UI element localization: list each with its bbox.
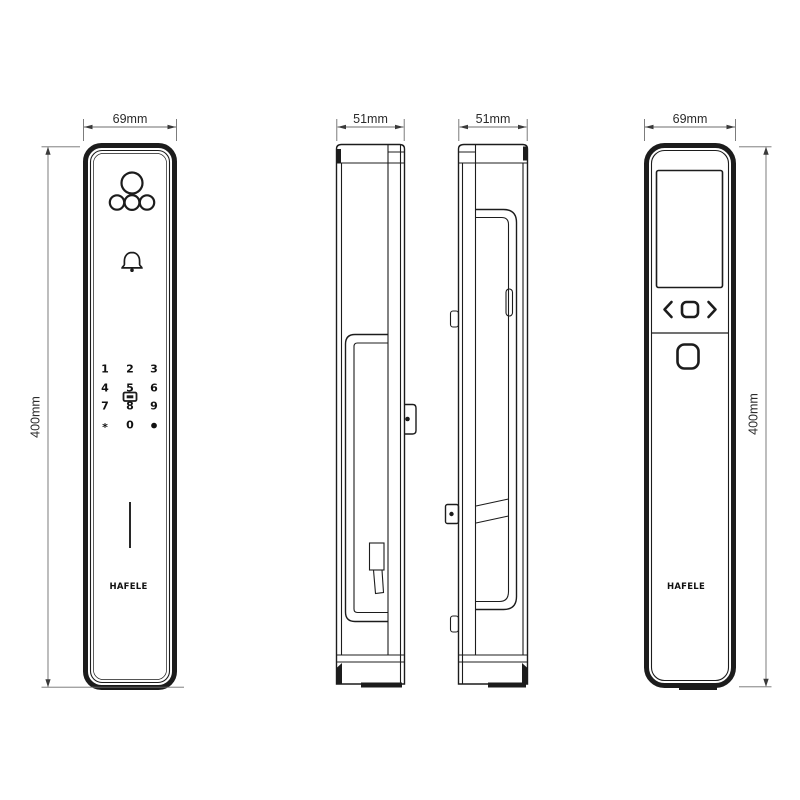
side-b-foot [488,683,526,688]
dim-label-side-b-width: 51mm [476,112,511,126]
keypad-key: 4 [101,382,109,395]
side-b-bottom-cap [459,655,528,662]
side-a-bottom-cap [337,655,405,662]
nav-right-icon [709,302,716,317]
side-a-body-outline [337,145,405,685]
keypad-key: 0 [126,419,134,432]
dim-label-front-width: 69mm [113,112,148,126]
keypad-key: 9 [150,400,158,413]
front-inner-line-2 [94,154,167,680]
key-cylinder-icon [370,543,385,594]
side-b-edge-shade-top [523,147,528,161]
nav-ok-icon [682,302,698,317]
brand-logo-front: HAFELE [109,582,147,592]
front-view: 1 2 3 4 5 6 7 8 9 * 0 ● HAFELE [86,146,175,688]
pull-handle-profile-b [476,210,517,610]
pull-handle-profile-a [346,335,389,622]
mount-clip-top [451,311,459,327]
dimension-front-height: 400mm [29,147,185,687]
keypad-key: * [102,421,108,434]
side-b-edge-shade-bottom [522,663,528,684]
strike-fitting-icon [446,505,459,524]
nav-left-icon [665,302,672,317]
keypad-key: 1 [101,363,109,376]
front-inner-line [91,151,170,683]
display-screen [657,171,723,288]
dim-label-front-height: 400mm [29,396,43,438]
side-a-foot [361,683,402,688]
dimension-back-width: 69mm [645,112,736,141]
side-b-top-cap [459,145,528,164]
technical-drawing-page: 1 2 3 4 5 6 7 8 9 * 0 ● HAFELE [0,0,800,800]
handle-slot-detail [506,289,513,316]
side-view-a [337,145,417,688]
side-a-edge-shade-bottom [337,663,343,684]
side-a-edge-shade-top [337,149,342,163]
dimension-side-a-width: 51mm [337,112,404,141]
keypad-key: ● [151,421,158,430]
dim-label-back-width: 69mm [673,112,708,126]
side-a-panel-lines [342,145,401,685]
keypad-key: 7 [101,400,109,413]
dimension-front-width: 69mm [84,112,177,141]
dimension-side-b-width: 51mm [459,112,527,141]
dimension-back-height: 400mm [739,147,772,687]
led-indicators-icon [110,195,154,210]
thumb-turn-button-icon [678,345,699,369]
side-view-b [446,145,528,688]
doorbell-icon [122,253,142,273]
keypad-key: 6 [150,382,158,395]
keypad-key: 3 [150,363,158,376]
side-a-top-cap [337,145,405,164]
dim-label-back-height: 400mm [747,393,761,435]
back-foot [679,686,717,690]
keypad: 1 2 3 4 5 6 7 8 9 * 0 ● [101,363,158,435]
brand-logo-back: HAFELE [667,582,705,592]
handle-lower-mount [476,499,509,523]
keypad-key: 8 [126,400,134,413]
nav-buttons [665,302,716,317]
keypad-key: 2 [126,363,134,376]
front-body-outline [86,146,175,688]
back-body-outline [647,146,734,686]
back-inner-line [652,151,729,681]
latch-bracket-icon [405,405,417,435]
back-view: HAFELE [647,146,734,691]
smart-lock-orthographic-drawing: 1 2 3 4 5 6 7 8 9 * 0 ● HAFELE [0,0,800,800]
dim-label-side-a-width: 51mm [353,112,388,126]
camera-lens-icon [122,173,143,194]
mount-clip-bottom [451,616,459,632]
